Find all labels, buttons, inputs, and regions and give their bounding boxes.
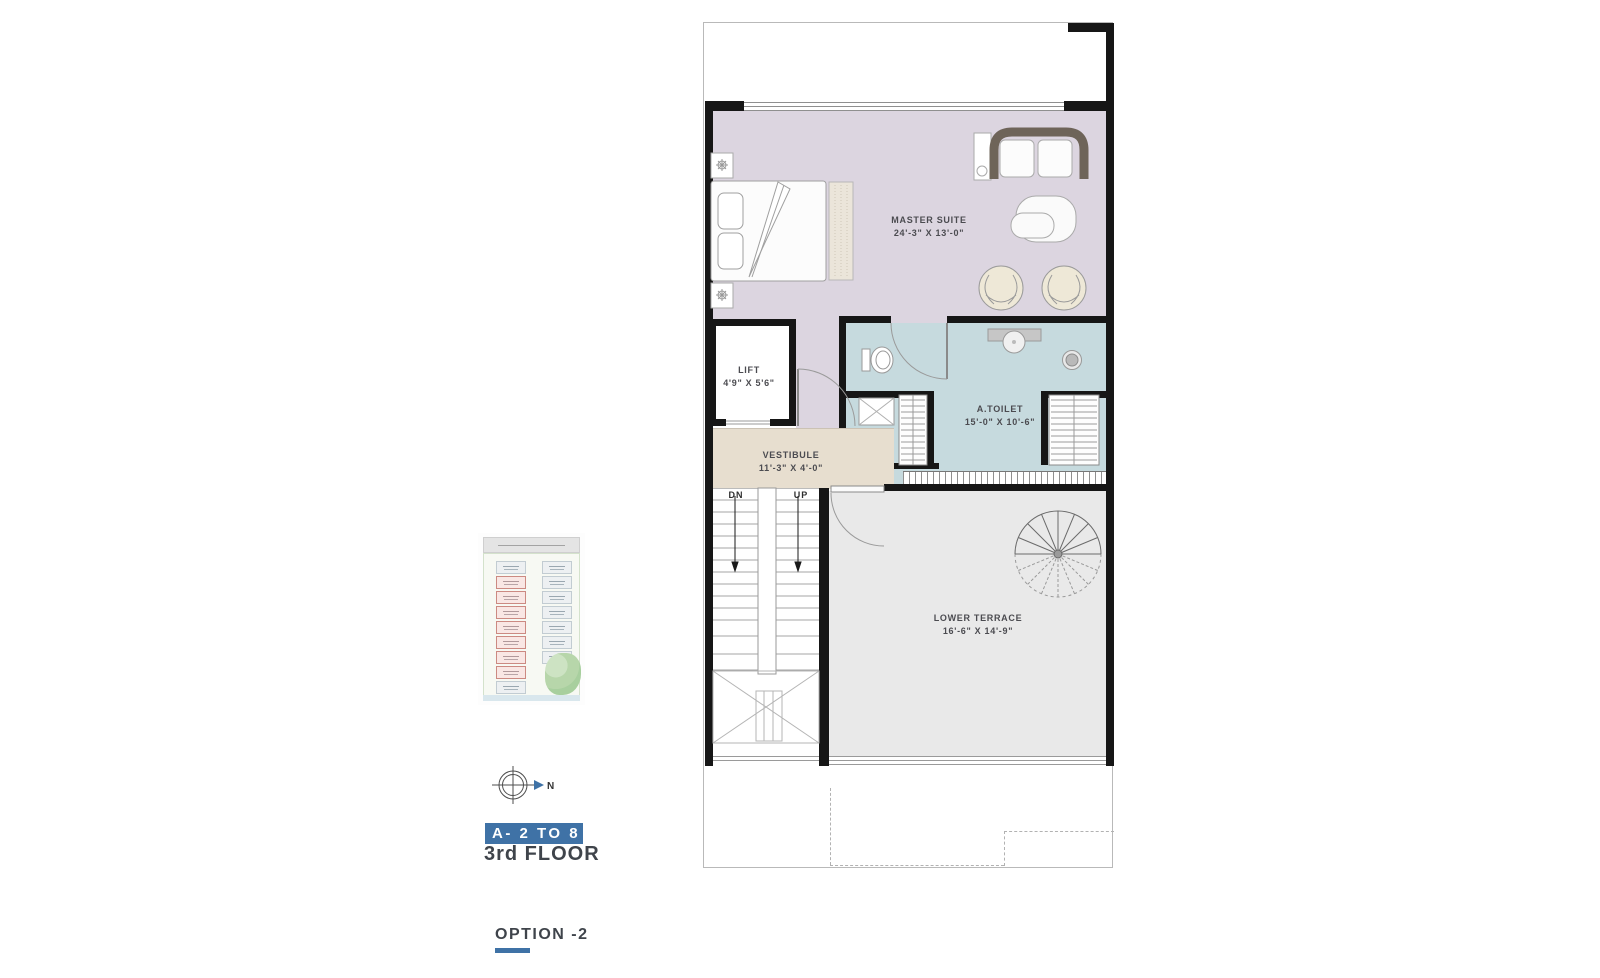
thumb-unit bbox=[496, 576, 526, 589]
lower-terrace-label: LOWER TERRACE 16'-6" X 14'-9" bbox=[878, 612, 1078, 638]
stair-treads bbox=[713, 488, 819, 674]
thumb-unit bbox=[496, 666, 526, 679]
option-underline bbox=[495, 948, 530, 953]
stairs-down-label: DN bbox=[725, 490, 747, 500]
pillow-icon bbox=[718, 233, 743, 269]
compass-north-label: N bbox=[547, 781, 554, 792]
lounge-chair-icon bbox=[1042, 266, 1086, 310]
vestibule-label: VESTIBULE 11'-3" X 4'-0" bbox=[711, 449, 871, 475]
thumb-unit bbox=[542, 636, 572, 649]
door-arc bbox=[831, 486, 884, 546]
side-unit-icon bbox=[974, 133, 991, 180]
lift-label: LIFT 4'9" X 5'6" bbox=[709, 364, 789, 390]
thumb-unit bbox=[496, 606, 526, 619]
floor-label: 3rd FLOOR bbox=[484, 843, 600, 866]
room-name: LOWER TERRACE bbox=[878, 612, 1078, 625]
master-suite-label: MASTER SUITE 24'-3" X 13'-0" bbox=[829, 214, 1029, 240]
north-compass-icon: N bbox=[486, 763, 558, 807]
thumb-unit bbox=[542, 576, 572, 589]
thumb-unit bbox=[496, 636, 526, 649]
plan-linework bbox=[704, 23, 1114, 869]
unit-range-badge: A- 2 TO 8 bbox=[485, 823, 583, 844]
option-label: OPTION -2 bbox=[495, 926, 589, 944]
lift-door bbox=[726, 419, 770, 426]
sink-icon bbox=[1063, 351, 1082, 370]
room-name: LIFT bbox=[709, 364, 789, 377]
thumb-unit bbox=[496, 681, 526, 694]
stairs-up-label: UP bbox=[790, 490, 812, 500]
room-dims: 24'-3" X 13'-0" bbox=[829, 227, 1029, 240]
thumb-green-area bbox=[545, 653, 581, 695]
toilet-label: A.TOILET 15'-0" X 10'-6" bbox=[900, 403, 1100, 429]
door-arc bbox=[891, 323, 947, 379]
lounge-chair-icon bbox=[979, 266, 1023, 310]
room-dims: 11'-3" X 4'-0" bbox=[711, 462, 871, 475]
bed-icon bbox=[711, 181, 826, 281]
thumb-unit bbox=[496, 591, 526, 604]
pillow-icon bbox=[718, 193, 743, 229]
floor-plan: MASTER SUITE 24'-3" X 13'-0" LIFT 4'9" X… bbox=[703, 22, 1113, 868]
nightstand-icon bbox=[711, 153, 733, 178]
thumb-unit bbox=[542, 591, 572, 604]
thumb-unit bbox=[542, 606, 572, 619]
thumb-road-banner bbox=[483, 537, 580, 553]
room-name: VESTIBULE bbox=[711, 449, 871, 462]
nightstand-icon bbox=[711, 283, 733, 308]
toilet-fixture-icon bbox=[862, 347, 893, 373]
room-name: A.TOILET bbox=[900, 403, 1100, 416]
thumb-unit bbox=[496, 561, 526, 574]
room-dims: 4'9" X 5'6" bbox=[709, 377, 789, 390]
floor-plan-page: MASTER SUITE 24'-3" X 13'-0" LIFT 4'9" X… bbox=[0, 0, 1600, 978]
spiral-staircase-icon bbox=[1015, 511, 1101, 597]
room-name: MASTER SUITE bbox=[829, 214, 1029, 227]
sofa-icon bbox=[994, 132, 1084, 179]
room-dims: 15'-0" X 10'-6" bbox=[900, 416, 1100, 429]
room-dims: 16'-6" X 14'-9" bbox=[878, 625, 1078, 638]
thumb-water-strip bbox=[483, 695, 580, 701]
thumb-unit bbox=[496, 651, 526, 664]
shaft-icon bbox=[859, 398, 894, 425]
door-arc bbox=[798, 369, 855, 426]
thumb-unit bbox=[542, 561, 572, 574]
thumb-unit bbox=[496, 621, 526, 634]
vanity-counter-icon bbox=[988, 329, 1041, 353]
landing-void bbox=[713, 671, 819, 743]
thumb-unit bbox=[542, 621, 572, 634]
site-plan-thumbnail bbox=[478, 533, 585, 705]
